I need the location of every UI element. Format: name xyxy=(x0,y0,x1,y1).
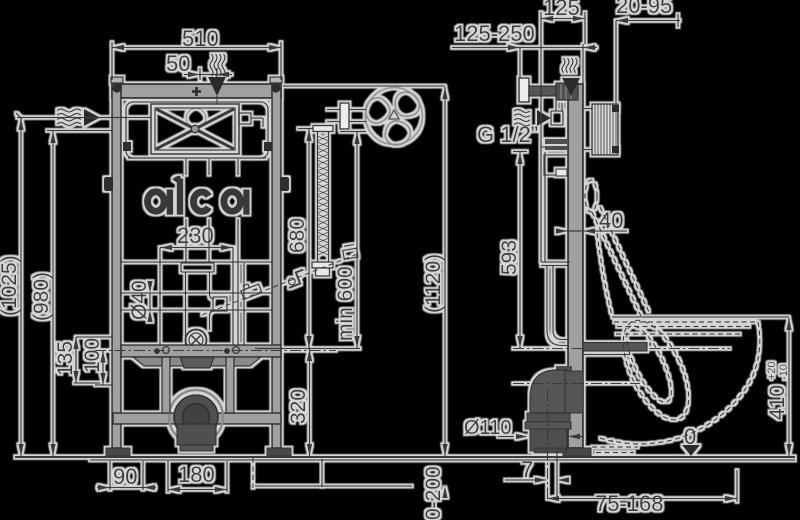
svg-text:50: 50 xyxy=(166,51,190,76)
svg-text:320: 320 xyxy=(287,389,310,424)
svg-text:75-168: 75-168 xyxy=(595,491,664,516)
svg-text:593: 593 xyxy=(498,240,521,275)
svg-text:90: 90 xyxy=(113,464,137,489)
svg-text:(980): (980) xyxy=(30,272,53,321)
svg-text:125-250: 125-250 xyxy=(454,21,535,46)
svg-text:Ø40: Ø40 xyxy=(128,280,151,320)
svg-text:7: 7 xyxy=(521,457,533,482)
svg-text:G 1/2”: G 1/2” xyxy=(477,122,538,147)
svg-text:230: 230 xyxy=(177,223,214,248)
svg-text:40: 40 xyxy=(599,208,623,233)
svg-text:180: 180 xyxy=(178,462,215,487)
svg-text:0-200: 0-200 xyxy=(422,466,445,520)
svg-text:+20: +20 xyxy=(766,361,778,380)
svg-text:410: 410 xyxy=(766,385,789,420)
svg-text:min 600: min 600 xyxy=(334,266,357,341)
svg-text:680: 680 xyxy=(286,218,309,253)
svg-text:Ø110: Ø110 xyxy=(464,417,511,439)
svg-text:(1120): (1120) xyxy=(422,254,445,313)
svg-text:100: 100 xyxy=(81,338,104,373)
svg-text:(1025): (1025) xyxy=(0,255,21,316)
svg-text:135: 135 xyxy=(54,341,77,376)
svg-text:20-95: 20-95 xyxy=(616,0,672,18)
svg-text:-10: -10 xyxy=(778,364,790,380)
